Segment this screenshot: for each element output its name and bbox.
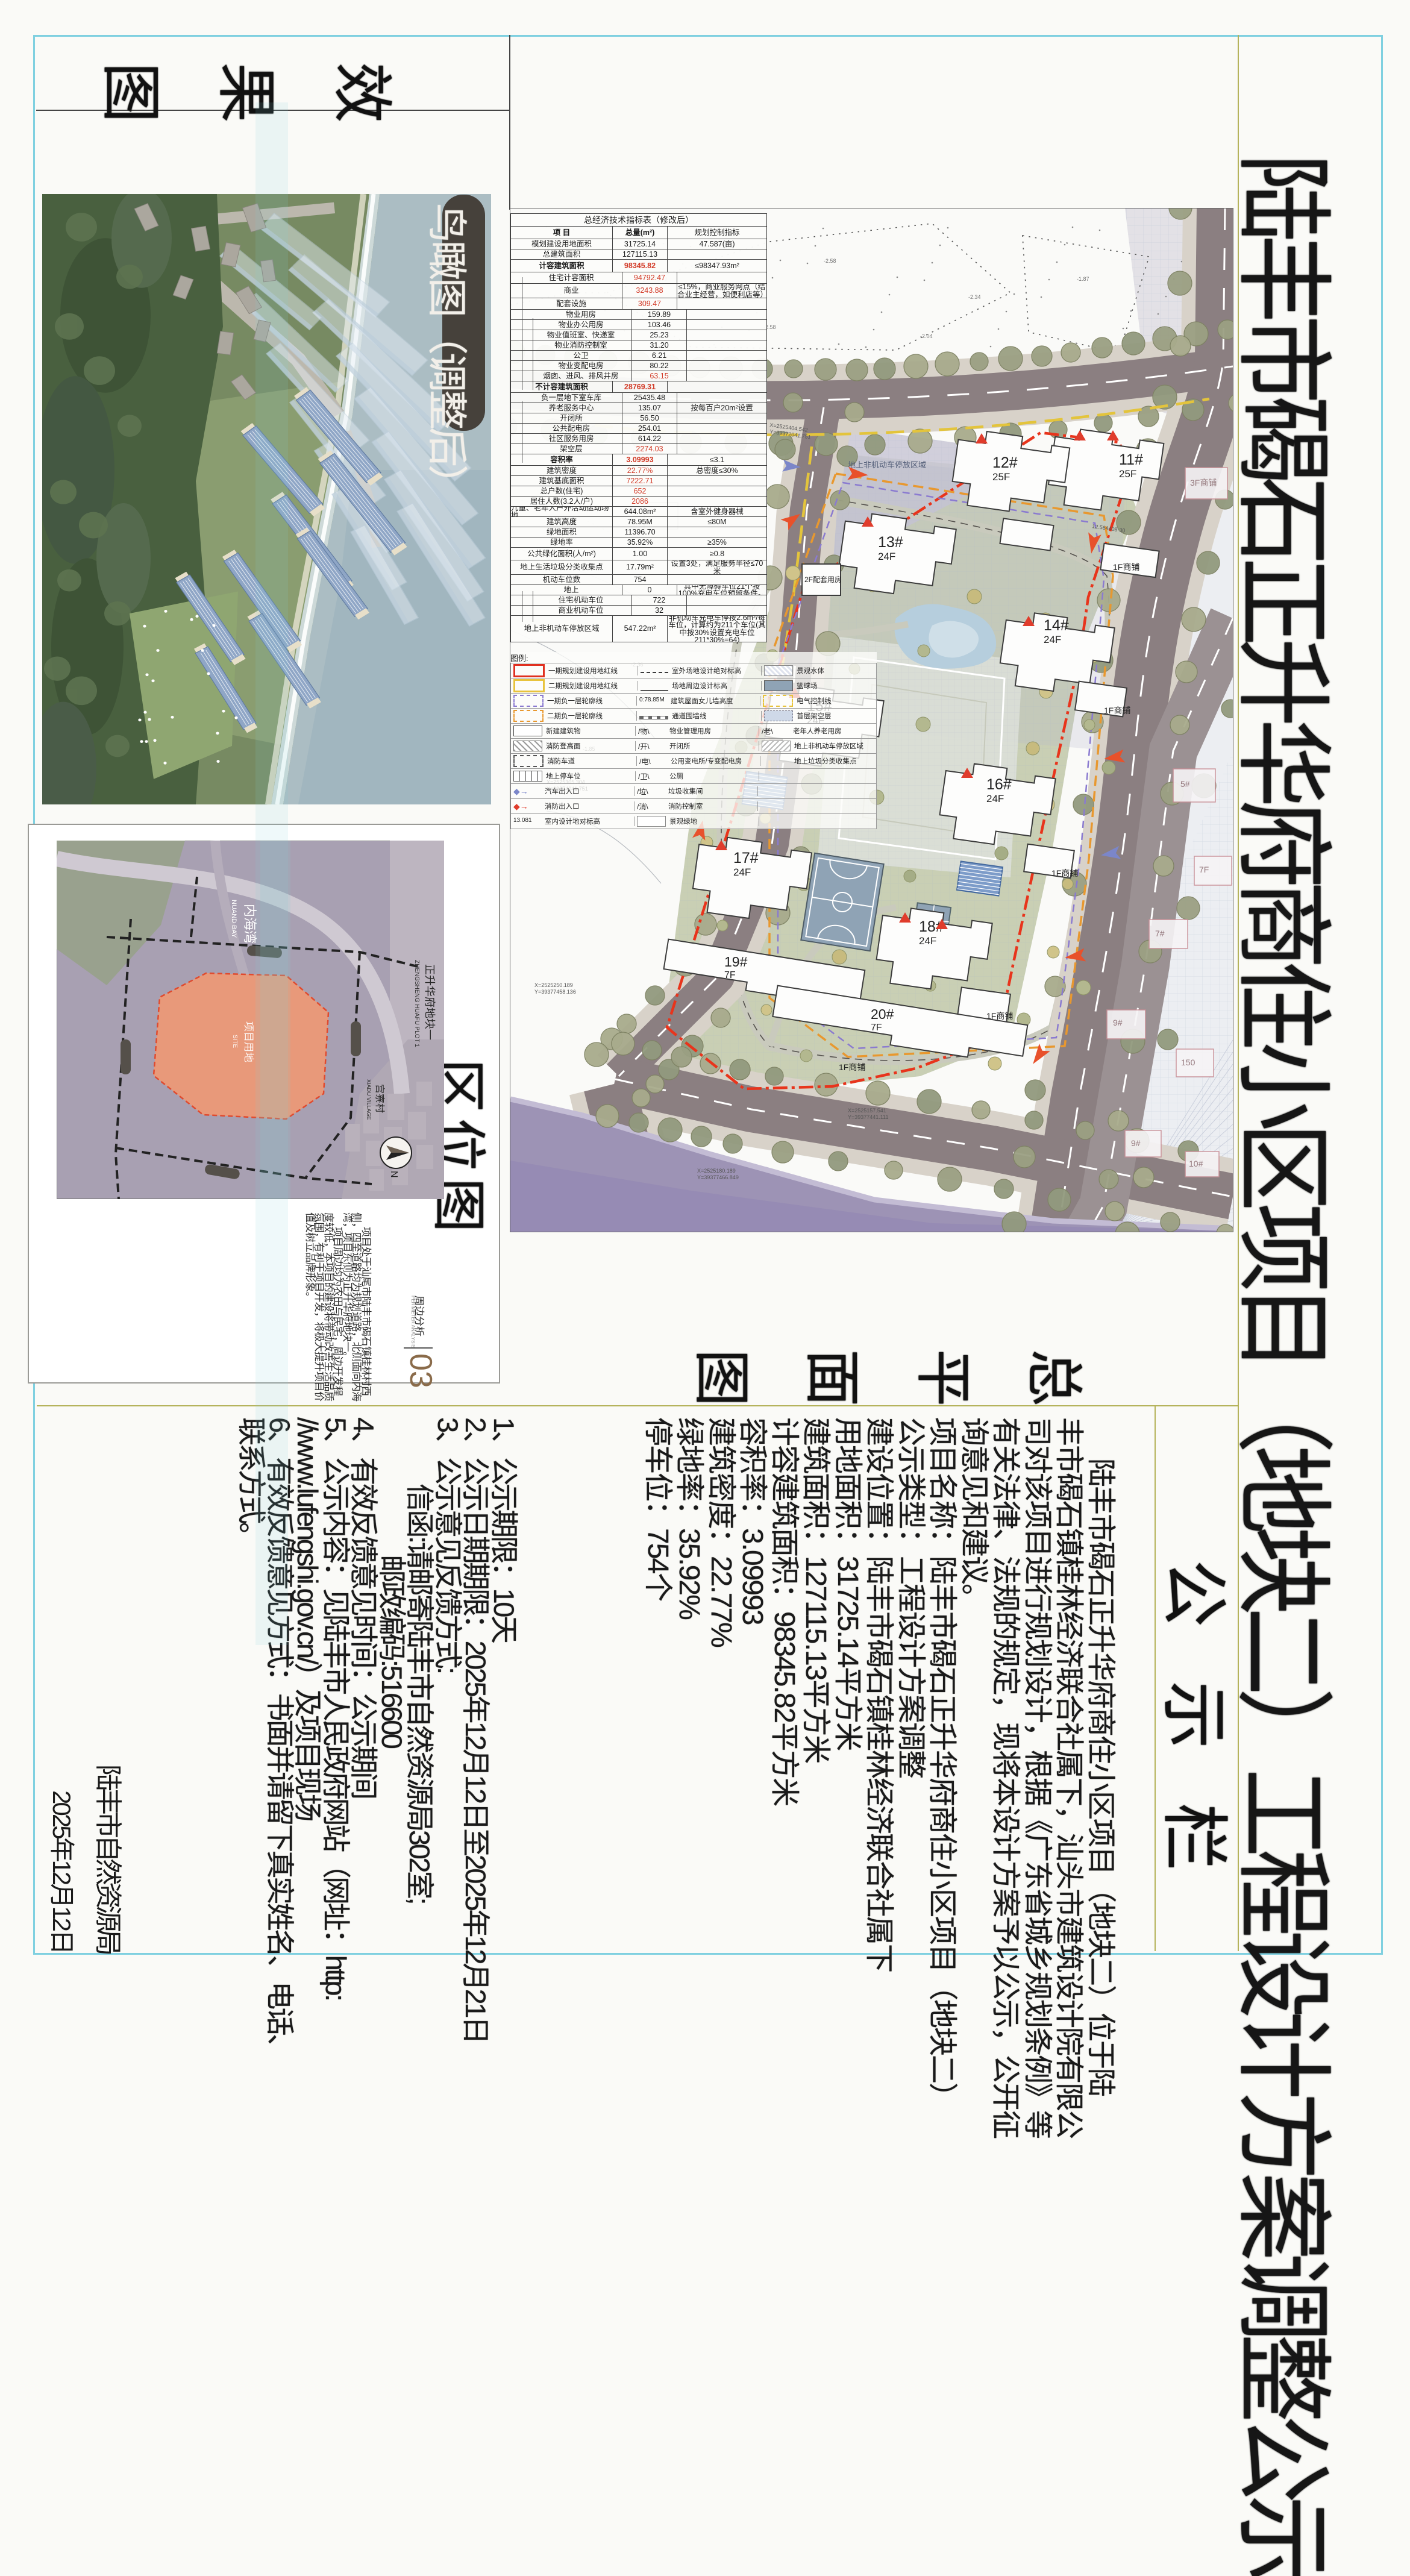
svg-text:-2.04: -2.04 xyxy=(920,333,933,339)
svg-text:14#: 14# xyxy=(1044,617,1069,634)
svg-text:25F: 25F xyxy=(1119,468,1136,480)
svg-text:7F: 7F xyxy=(1199,865,1209,874)
svg-text:17#: 17# xyxy=(733,850,759,867)
svg-text:24F: 24F xyxy=(919,935,936,947)
svg-text:19#: 19# xyxy=(724,954,748,970)
svg-text:Y=39377458.136: Y=39377458.136 xyxy=(534,989,576,995)
svg-text:11#: 11# xyxy=(1119,451,1143,468)
svg-text:7F: 7F xyxy=(724,970,736,980)
svg-text:24F: 24F xyxy=(986,793,1004,804)
svg-text:NUAND BAY: NUAND BAY xyxy=(230,900,237,938)
svg-text:16#: 16# xyxy=(986,776,1012,793)
svg-text:1F商铺: 1F商铺 xyxy=(839,1062,865,1072)
svg-text:13#: 13# xyxy=(878,534,903,551)
svg-text:ZHENGSHENG HUAFU PLOT 1: ZHENGSHENG HUAFU PLOT 1 xyxy=(413,960,420,1047)
svg-text:2F配套用房: 2F配套用房 xyxy=(804,575,842,584)
svg-text:10#: 10# xyxy=(1189,1159,1203,1168)
svg-text:25F: 25F xyxy=(992,471,1010,483)
svg-text:X=2525250.189: X=2525250.189 xyxy=(534,982,573,988)
svg-text:12#: 12# xyxy=(992,454,1018,471)
svg-text:24F: 24F xyxy=(878,551,895,562)
svg-text:1F商铺: 1F商铺 xyxy=(1104,706,1130,715)
svg-text:-2.34: -2.34 xyxy=(968,294,981,300)
svg-text:20#: 20# xyxy=(871,1006,894,1022)
svg-text:X=2525157.541: X=2525157.541 xyxy=(848,1108,886,1114)
svg-text:24F: 24F xyxy=(733,867,751,878)
svg-text:150: 150 xyxy=(1181,1058,1195,1067)
svg-text:-1.87: -1.87 xyxy=(1077,276,1089,282)
svg-text:24F: 24F xyxy=(1044,634,1061,645)
svg-text:1F商铺: 1F商铺 xyxy=(986,1011,1013,1021)
svg-text:5#: 5# xyxy=(1180,779,1190,789)
svg-text:7F: 7F xyxy=(871,1023,882,1033)
svg-text:N: N xyxy=(389,1171,399,1178)
svg-text:Y=39377466.849: Y=39377466.849 xyxy=(697,1174,739,1180)
svg-text:9#: 9# xyxy=(1131,1138,1141,1148)
svg-text:1F商铺: 1F商铺 xyxy=(1051,868,1078,878)
svg-text:SITE: SITE xyxy=(231,1035,238,1048)
svg-text:Y=39377441.111: Y=39377441.111 xyxy=(848,1114,888,1120)
svg-text:正升华府地块一: 正升华府地块一 xyxy=(424,964,436,1040)
svg-text:X=2525180.189: X=2525180.189 xyxy=(697,1168,736,1174)
svg-text:9#: 9# xyxy=(1113,1018,1123,1027)
svg-text:7#: 7# xyxy=(1155,929,1165,938)
svg-text:3F商铺: 3F商铺 xyxy=(1190,478,1217,487)
svg-text:-2.58: -2.58 xyxy=(824,258,836,264)
svg-text:宫寮村: 宫寮村 xyxy=(374,1084,385,1113)
svg-text:地上非机动车停放区域: 地上非机动车停放区域 xyxy=(848,460,926,469)
svg-text:XIADU VILLAGE: XIADU VILLAGE xyxy=(366,1079,372,1120)
svg-text:1F商铺: 1F商铺 xyxy=(1113,562,1139,572)
svg-text:项目用地: 项目用地 xyxy=(243,1021,254,1062)
